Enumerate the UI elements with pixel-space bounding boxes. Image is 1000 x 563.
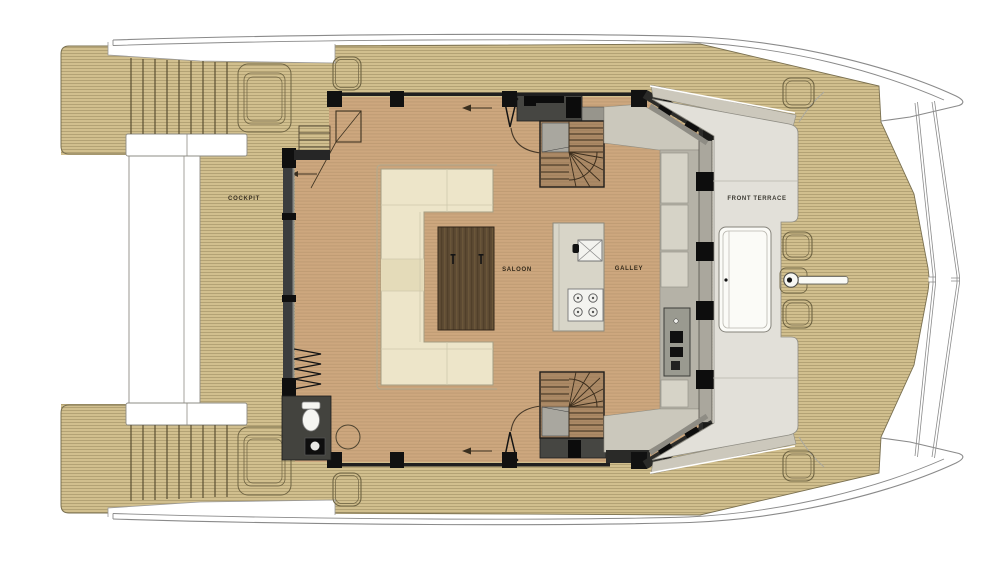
- svg-text:FRONT TERRACE: FRONT TERRACE: [727, 196, 786, 202]
- svg-text:SALOON: SALOON: [502, 267, 532, 273]
- svg-text:COCKPIT: COCKPIT: [228, 196, 260, 202]
- svg-text:GALLEY: GALLEY: [615, 266, 644, 272]
